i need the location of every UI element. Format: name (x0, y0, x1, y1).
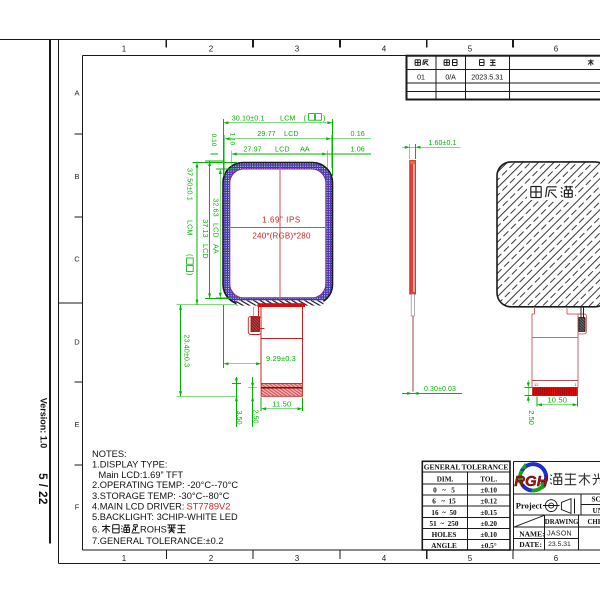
svg-text:2: 2 (209, 554, 214, 563)
svg-text:10.50: 10.50 (547, 396, 567, 405)
svg-text:NOTES:: NOTES: (92, 449, 127, 459)
svg-text:1.60±0.1: 1.60±0.1 (429, 140, 457, 147)
svg-text:5: 5 (468, 554, 473, 563)
svg-text:LCD: LCD (275, 145, 290, 154)
svg-text:±0.15: ±0.15 (480, 509, 497, 517)
svg-text:±0.5°: ±0.5° (481, 542, 497, 550)
svg-text:Project: Project (516, 501, 542, 511)
svg-text:±0.10: ±0.10 (480, 531, 497, 539)
svg-text:NAME:: NAME: (519, 529, 544, 538)
svg-text:Main LCD:1.69” TFT: Main LCD:1.69” TFT (99, 470, 184, 480)
svg-text:1.10: 1.10 (229, 132, 236, 145)
svg-text:RGH: RGH (514, 473, 549, 490)
svg-text:23.5.31: 23.5.31 (548, 541, 571, 548)
svg-text:ANGLE: ANGLE (431, 542, 457, 550)
svg-text:TOL.: TOL. (480, 475, 497, 483)
svg-text:2.OPERATING TEMP: -20°C--70°C: 2.OPERATING TEMP: -20°C--70°C (92, 480, 238, 490)
svg-text:): ) (186, 273, 195, 275)
svg-text:D: D (74, 338, 80, 347)
svg-text:DATE:: DATE: (519, 540, 542, 549)
svg-text:23.40±0.3: 23.40±0.3 (183, 334, 192, 367)
svg-text:AA: AA (300, 145, 310, 154)
svg-text:27.97: 27.97 (243, 145, 261, 154)
svg-text:9.29±0.3: 9.29±0.3 (266, 354, 296, 363)
svg-text:29.77: 29.77 (257, 129, 276, 138)
svg-text:Version: 1.0: Version: 1.0 (39, 398, 49, 449)
svg-text:GENERAL TOLERANCE: GENERAL TOLERANCE (424, 463, 509, 472)
svg-text:6: 6 (554, 554, 559, 563)
svg-text:HOLES: HOLES (432, 531, 457, 539)
svg-text:7.GENERAL TOLERANCE:±0.2: 7.GENERAL TOLERANCE:±0.2 (92, 536, 224, 546)
svg-text:30.10±0.1: 30.10±0.1 (232, 113, 265, 122)
svg-text:0.10: 0.10 (210, 134, 217, 147)
svg-text:5 / 22: 5 / 22 (36, 473, 48, 505)
svg-text:ROHS: ROHS (140, 524, 167, 534)
svg-text:37.50±0.1: 37.50±0.1 (186, 168, 195, 201)
svg-text:): ) (323, 113, 325, 122)
svg-text:±0.20: ±0.20 (480, 520, 497, 528)
svg-text:SCALE: SCALE (592, 496, 600, 504)
svg-text:1: 1 (122, 45, 127, 54)
svg-text:5: 5 (468, 45, 473, 54)
svg-text:1: 1 (122, 554, 127, 563)
svg-text:5.BACKLIGHT: 3CHIP-WHITE LED: 5.BACKLIGHT: 3CHIP-WHITE LED (92, 512, 238, 522)
svg-text:LCM: LCM (280, 113, 295, 122)
svg-text:DRAWING: DRAWING (545, 519, 579, 526)
svg-text:6 ~ 15: 6 ~ 15 (432, 498, 456, 506)
svg-text:2: 2 (209, 45, 214, 54)
svg-text:±0.12: ±0.12 (480, 498, 497, 506)
svg-text:C: C (74, 254, 80, 263)
svg-text:2.50: 2.50 (251, 410, 260, 424)
svg-text:±0.10: ±0.10 (480, 487, 497, 495)
svg-text:0.30±0.03: 0.30±0.03 (424, 386, 456, 393)
svg-text:F: F (75, 503, 80, 512)
svg-text:0/A: 0/A (445, 74, 456, 81)
svg-text:DIM.: DIM. (437, 475, 454, 483)
svg-text:11.50: 11.50 (272, 399, 291, 408)
svg-text:0 ~ 5: 0 ~ 5 (433, 487, 455, 495)
svg-text:3: 3 (295, 554, 300, 563)
svg-text:1.06: 1.06 (351, 145, 365, 154)
svg-text:51 ~ 250: 51 ~ 250 (430, 520, 459, 528)
svg-text:E: E (74, 420, 79, 429)
svg-text:240*(RGB)*280: 240*(RGB)*280 (252, 232, 311, 241)
svg-text:UNIT: UNIT (593, 507, 600, 515)
svg-text:32.63 LCD AA: 32.63 LCD AA (211, 198, 220, 254)
svg-text:JASON: JASON (547, 531, 572, 538)
svg-text:4.MAIN LCD DRIVER:: 4.MAIN LCD DRIVER: (92, 501, 184, 511)
svg-text:2023.5.31: 2023.5.31 (471, 72, 503, 81)
svg-text:6.: 6. (92, 524, 100, 534)
svg-text:A: A (74, 89, 79, 98)
svg-text:16 ~ 50: 16 ~ 50 (431, 509, 457, 517)
svg-text:6: 6 (554, 45, 559, 54)
svg-text:1.DISPLAY TYPE:: 1.DISPLAY TYPE: (92, 459, 167, 469)
svg-text:1.69” IPS: 1.69” IPS (262, 216, 301, 225)
svg-text:2.50: 2.50 (527, 410, 536, 425)
svg-text:3: 3 (295, 45, 300, 54)
svg-text:3.STORAGE TEMP: -30°C--80°C: 3.STORAGE TEMP: -30°C--80°C (92, 491, 230, 501)
svg-text:B: B (74, 172, 79, 181)
svg-text:CHECK: CHECK (588, 519, 600, 526)
svg-text:4: 4 (382, 45, 387, 54)
svg-text:12: 12 (534, 382, 539, 387)
svg-text:ST7789V2: ST7789V2 (187, 501, 231, 511)
svg-text:3.50: 3.50 (235, 411, 244, 425)
svg-text:01: 01 (417, 74, 425, 81)
svg-text:0.16: 0.16 (351, 129, 365, 138)
svg-text:4: 4 (382, 554, 387, 563)
svg-text:37.13 LCD: 37.13 LCD (201, 219, 210, 258)
svg-text:LCM: LCM (186, 220, 195, 235)
svg-text:LCD: LCD (284, 129, 299, 138)
